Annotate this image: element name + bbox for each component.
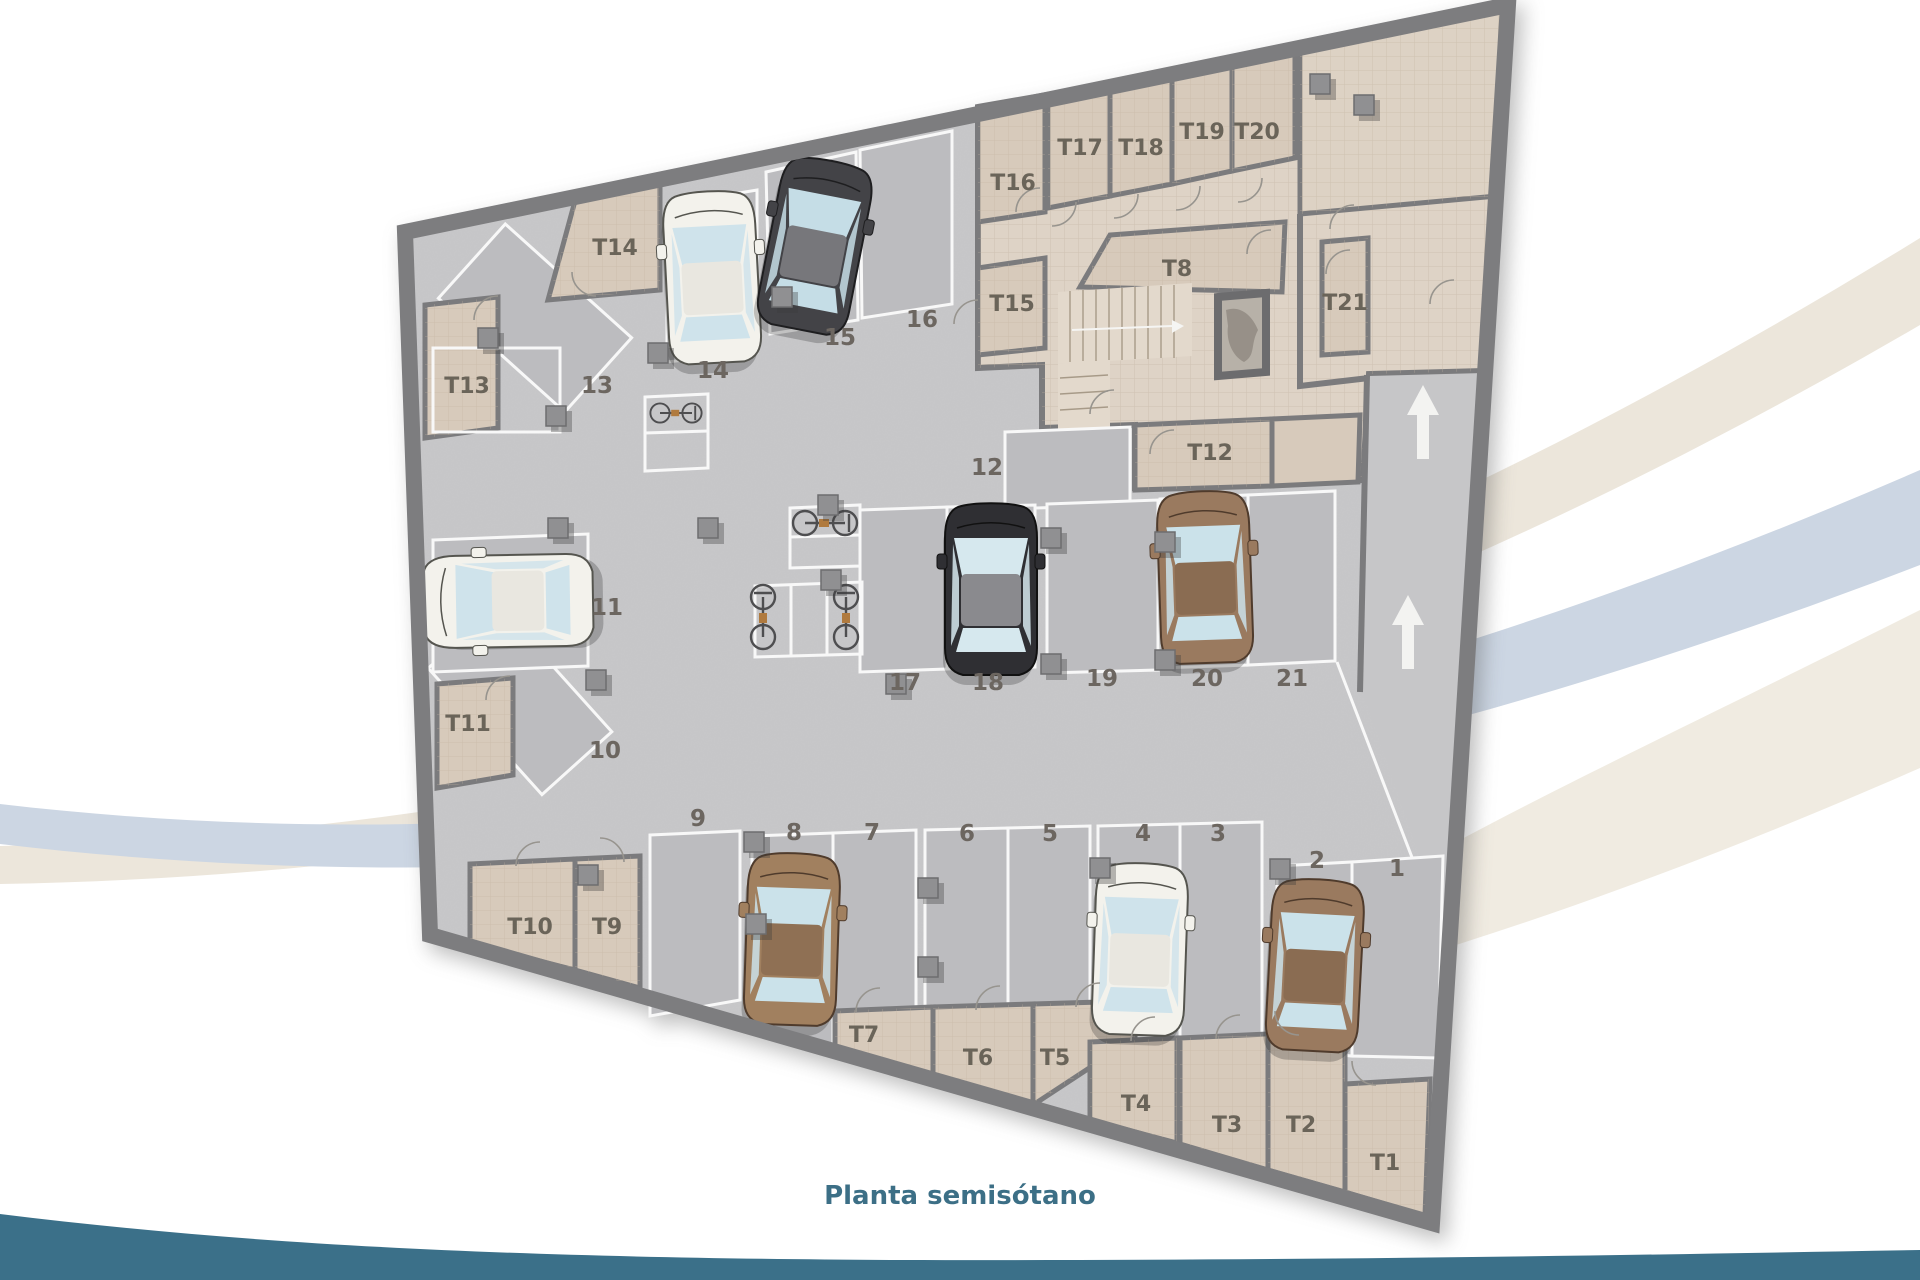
storage-label-t17: T17 — [1057, 136, 1103, 161]
storage-label-t10: T10 — [507, 915, 553, 940]
parking-spot-label-14: 14 — [697, 358, 729, 384]
parking-spot-label-15: 15 — [824, 325, 856, 351]
parking-spot-label-20: 20 — [1191, 666, 1223, 692]
parking-spot-17 — [860, 507, 947, 672]
storage-label-t4: T4 — [1121, 1092, 1151, 1117]
parking-spot-21 — [1248, 491, 1335, 665]
parking-spot-19 — [1047, 500, 1158, 673]
storage-label-t9: T9 — [592, 915, 622, 940]
storage-label-t1: T1 — [1370, 1151, 1400, 1176]
parking-spot-label-7: 7 — [864, 820, 880, 846]
parking-spot-3 — [1180, 822, 1262, 1046]
storage-label-t14: T14 — [592, 236, 638, 261]
storage-label-t3: T3 — [1212, 1113, 1242, 1138]
car-spot-14 — [654, 189, 771, 376]
parking-spot-12 — [1005, 427, 1130, 509]
car-spot-20 — [1148, 489, 1262, 674]
storage-label-t15: T15 — [989, 292, 1035, 317]
page-title: Planta semisótano — [824, 1181, 1096, 1211]
parking-spot-label-10: 10 — [589, 738, 621, 764]
page: 1 2 3 4 5 6 7 8 9 10 11 12 13 14 15 16 1… — [0, 0, 1920, 1280]
room-hall-cell — [1272, 415, 1360, 486]
stair-lower-flight — [1058, 360, 1110, 432]
parking-spot-label-13: 13 — [581, 373, 613, 399]
parking-spot-label-4: 4 — [1135, 821, 1151, 847]
parking-spot-label-5: 5 — [1042, 821, 1058, 847]
car-spot-8 — [735, 851, 849, 1036]
stair-landing — [1058, 283, 1192, 364]
storage-label-t2: T2 — [1286, 1113, 1316, 1138]
parking-spot-9 — [650, 831, 740, 1016]
floor-plan: 1 2 3 4 5 6 7 8 9 10 11 12 13 14 15 16 1… — [380, 0, 1540, 1250]
parking-spot-5 — [1008, 826, 1090, 1016]
storage-label-t11: T11 — [445, 712, 491, 737]
storage-label-t6: T6 — [963, 1046, 993, 1071]
car-spot-4 — [1083, 861, 1197, 1046]
storage-label-t8: T8 — [1162, 257, 1192, 282]
storage-label-t5: T5 — [1040, 1046, 1070, 1071]
parking-spot-label-17: 17 — [889, 670, 921, 696]
storage-label-t13: T13 — [444, 374, 490, 399]
parking-spot-label-8: 8 — [786, 820, 802, 846]
parking-spot-label-3: 3 — [1210, 821, 1226, 847]
storage-label-t19: T19 — [1179, 120, 1225, 145]
parking-spot-label-1: 1 — [1389, 856, 1405, 882]
parking-spot-label-11: 11 — [591, 595, 623, 621]
storage-label-t18: T18 — [1118, 136, 1164, 161]
parking-spot-label-18: 18 — [972, 670, 1004, 696]
footer: Planta semisótano — [0, 1181, 1920, 1280]
footer-band — [0, 1214, 1920, 1280]
parking-spot-label-6: 6 — [959, 821, 975, 847]
floor-plan-canvas: 1 2 3 4 5 6 7 8 9 10 11 12 13 14 15 16 1… — [0, 0, 1920, 1280]
parking-spot-label-9: 9 — [690, 806, 706, 832]
storage-label-t7: T7 — [849, 1023, 879, 1048]
parking-spot-label-16: 16 — [906, 307, 938, 333]
parking-spot-label-19: 19 — [1086, 666, 1118, 692]
parking-spot-1 — [1352, 856, 1443, 1058]
car-spot-2 — [1256, 877, 1373, 1064]
car-spot-11 — [420, 545, 604, 656]
parking-spot-label-12: 12 — [971, 455, 1003, 481]
storage-label-t12: T12 — [1187, 441, 1233, 466]
parking-spot-label-21: 21 — [1276, 666, 1308, 692]
parking-spot-label-2: 2 — [1309, 848, 1325, 874]
elevator — [1218, 293, 1266, 376]
storage-label-t20: T20 — [1234, 120, 1280, 145]
storage-label-t21: T21 — [1322, 291, 1368, 316]
storage-label-t16: T16 — [990, 171, 1036, 196]
car-spot-18 — [937, 503, 1045, 685]
parking-spot-6 — [925, 828, 1008, 1011]
